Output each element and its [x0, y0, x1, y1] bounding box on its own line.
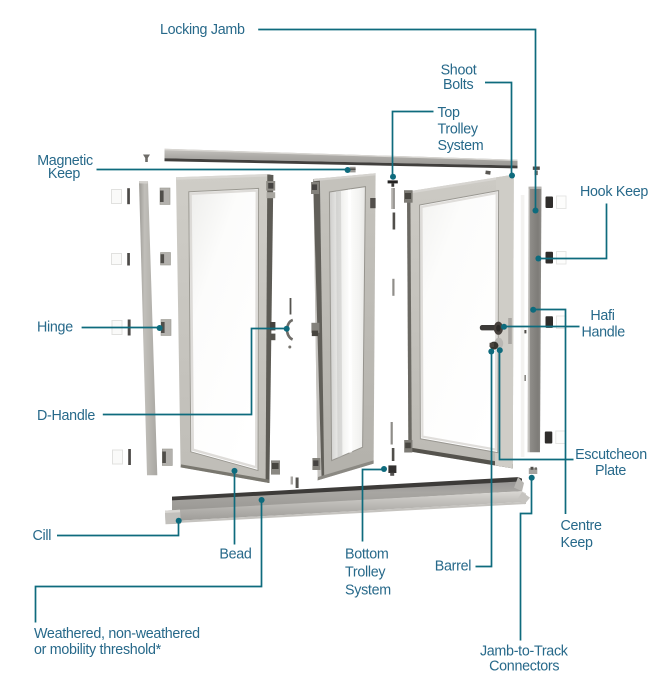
svg-text:Cill: Cill: [33, 528, 52, 544]
svg-text:Trolley: Trolley: [345, 564, 386, 580]
svg-text:Trolley: Trolley: [438, 121, 479, 137]
svg-text:or mobility threshold*: or mobility threshold*: [34, 642, 162, 658]
svg-text:Centre: Centre: [561, 518, 602, 534]
svg-text:Jamb-to-Track: Jamb-to-Track: [480, 644, 569, 660]
svg-text:Hook Keep: Hook Keep: [580, 184, 648, 200]
svg-text:Locking Jamb: Locking Jamb: [160, 22, 245, 38]
svg-text:Hafi: Hafi: [590, 308, 614, 324]
svg-text:Shoot: Shoot: [441, 62, 477, 78]
svg-text:System: System: [438, 138, 484, 154]
svg-text:Barrel: Barrel: [435, 559, 471, 575]
svg-text:Bolts: Bolts: [443, 77, 473, 93]
svg-text:Bottom: Bottom: [345, 546, 389, 562]
svg-text:Keep: Keep: [561, 535, 594, 551]
svg-text:System: System: [345, 582, 391, 598]
svg-text:Connectors: Connectors: [489, 659, 559, 675]
svg-text:Bead: Bead: [219, 546, 252, 562]
svg-text:Plate: Plate: [595, 463, 626, 479]
svg-text:Top: Top: [438, 105, 460, 121]
svg-text:Hinge: Hinge: [37, 319, 73, 335]
svg-text:D-Handle: D-Handle: [37, 408, 95, 424]
svg-text:Handle: Handle: [581, 324, 625, 340]
svg-text:Keep: Keep: [48, 166, 81, 182]
svg-text:Escutcheon: Escutcheon: [575, 447, 647, 463]
svg-text:Weathered, non-weathered: Weathered, non-weathered: [34, 626, 200, 642]
